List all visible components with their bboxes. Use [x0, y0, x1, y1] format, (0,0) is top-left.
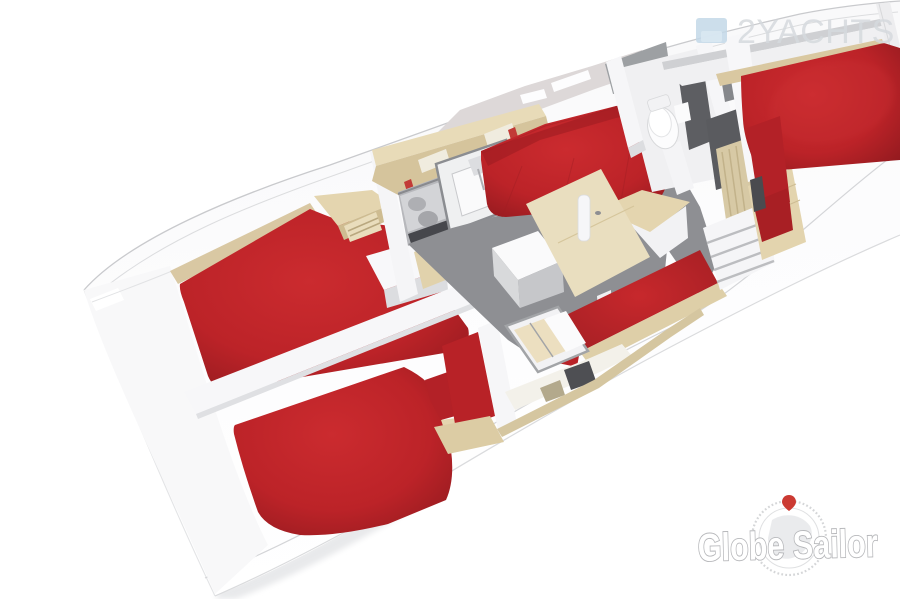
svg-text:2YACHTS: 2YACHTS [737, 13, 895, 51]
svg-text:Globe Sailor: Globe Sailor [697, 522, 878, 570]
